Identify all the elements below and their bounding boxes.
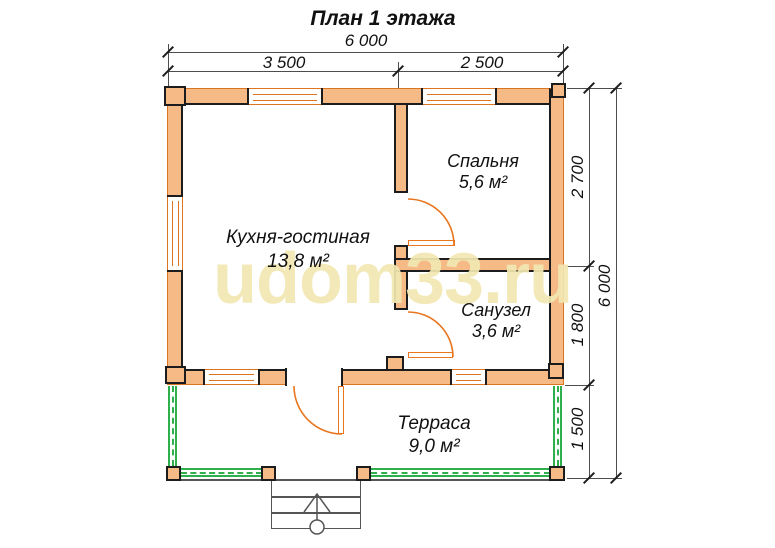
- floor-plan: План 1 этажа 6 000 3 500 2 500 2 700 1 8…: [0, 0, 775, 548]
- room-label-kitchen: Кухня-гостиная: [226, 227, 370, 249]
- room-area-kitchen: 13,8 м²: [267, 251, 329, 273]
- room-label-terrace: Терраса: [397, 413, 470, 435]
- room-area-terrace: 9,0 м²: [408, 436, 459, 458]
- room-label-bedroom: Спальня: [447, 151, 519, 172]
- stair-start-circle-icon: [310, 520, 324, 534]
- room-label-bathroom: Санузел: [461, 300, 531, 321]
- room-area-bathroom: 3,6 м²: [472, 321, 520, 342]
- door-arc-terrace: [294, 386, 342, 434]
- room-area-bedroom: 5,6 м²: [459, 172, 507, 193]
